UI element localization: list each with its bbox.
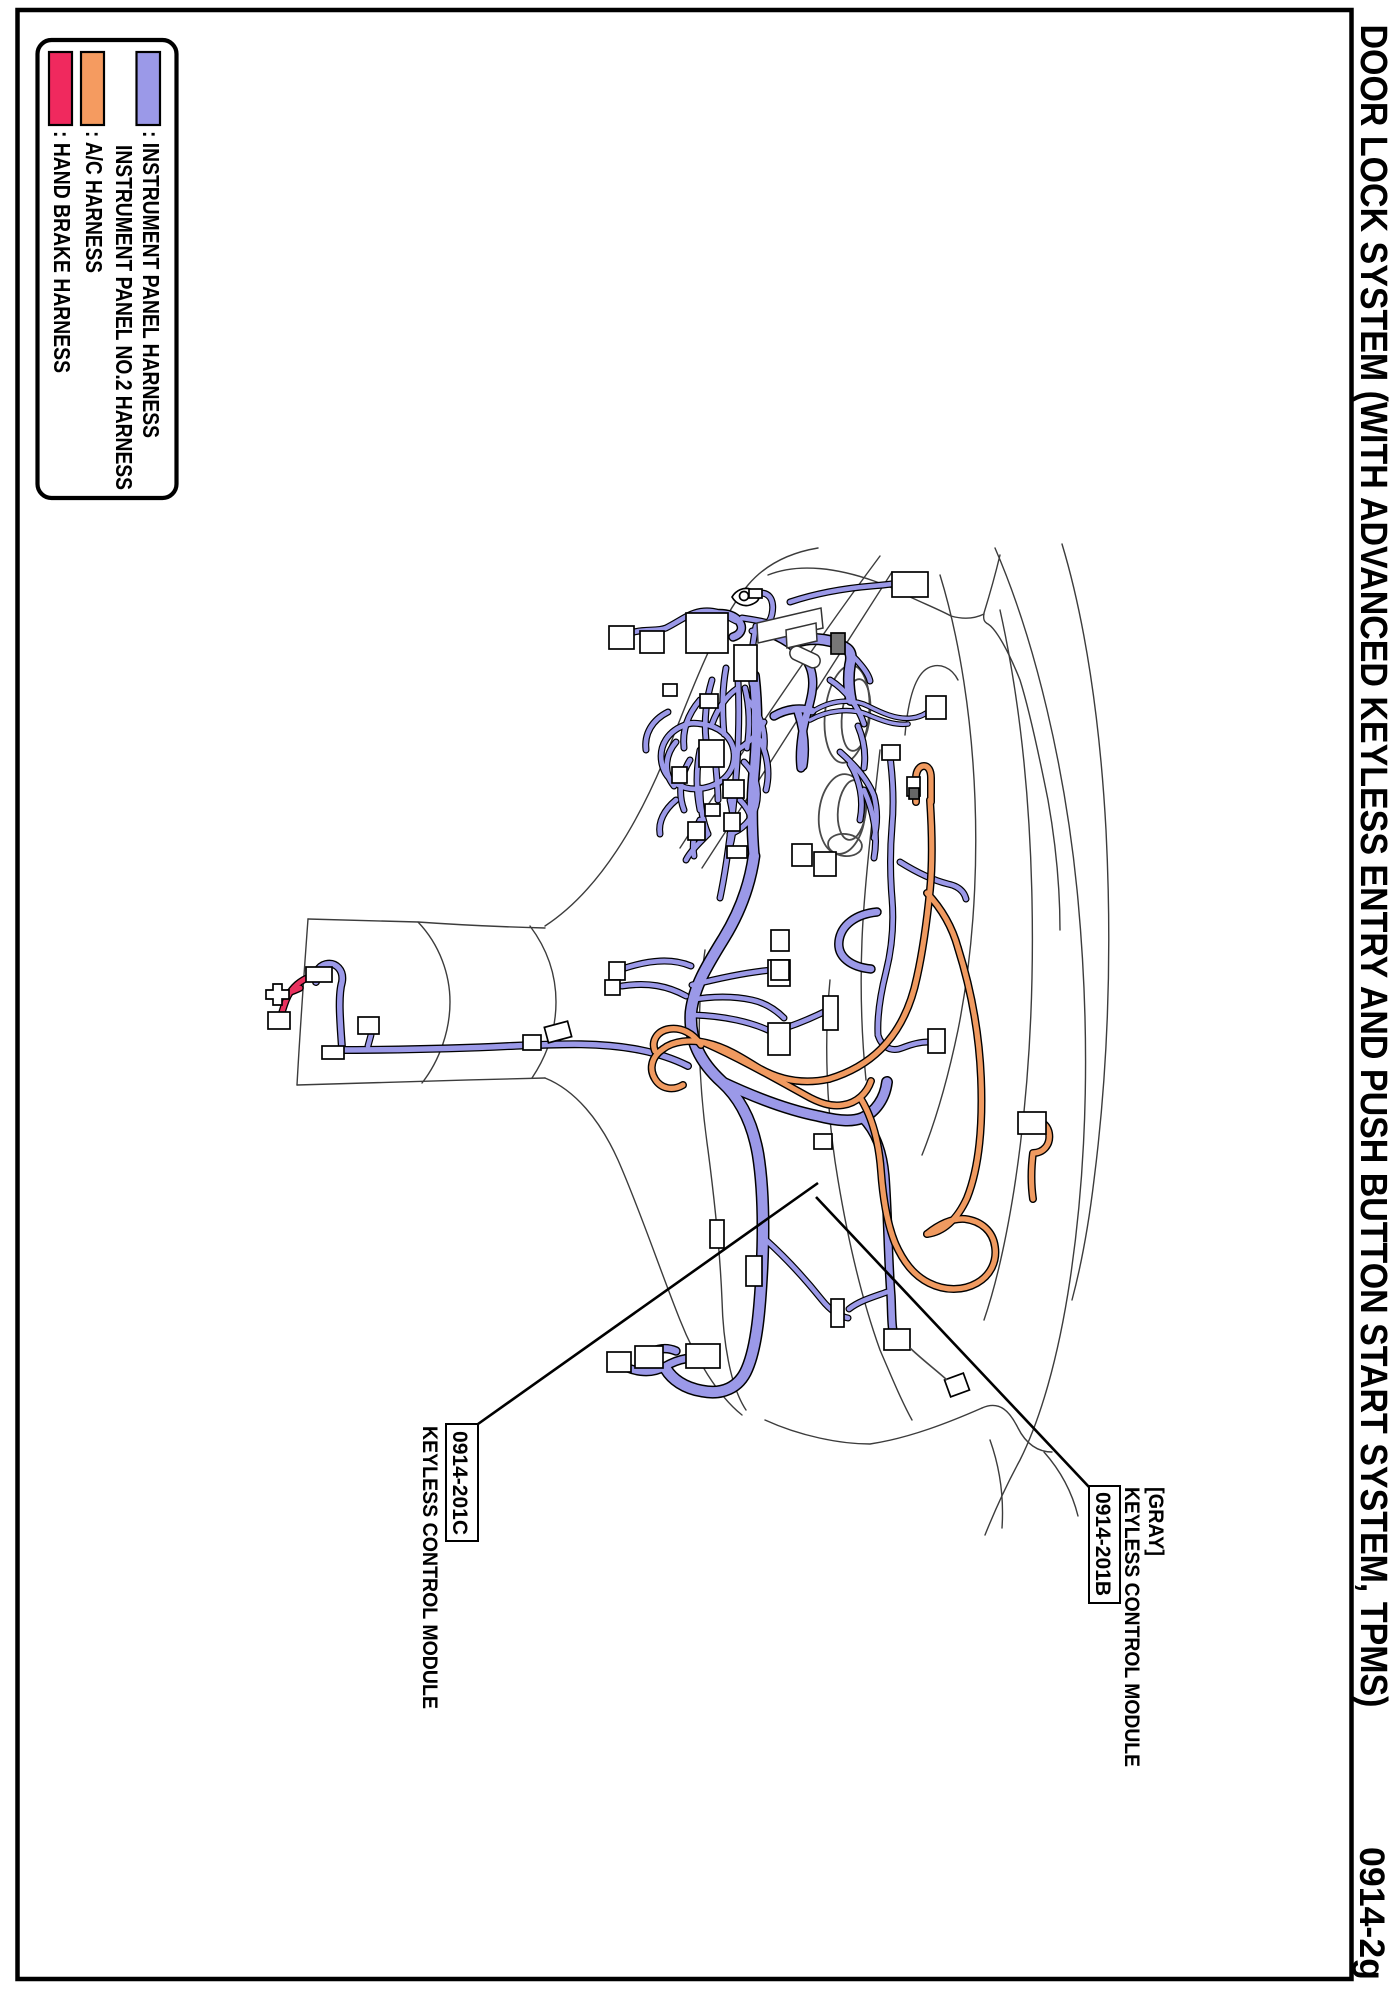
svg-text:DOOR LOCK SYSTEM (WITH ADVANCE: DOOR LOCK SYSTEM (WITH ADVANCED KEYLESS … bbox=[1352, 25, 1392, 1708]
svg-text:0914-201C: 0914-201C bbox=[448, 1431, 471, 1535]
svg-text:KEYLESS CONTROL MODULE: KEYLESS CONTROL MODULE bbox=[418, 1426, 441, 1709]
svg-text:0914-2g: 0914-2g bbox=[1352, 1847, 1391, 1980]
svg-text:: A/C HARNESS: : A/C HARNESS bbox=[81, 131, 107, 273]
svg-text:KEYLESS CONTROL MODULE: KEYLESS CONTROL MODULE bbox=[1120, 1487, 1143, 1767]
svg-text:: HAND BRAKE HARNESS: : HAND BRAKE HARNESS bbox=[49, 131, 75, 373]
svg-text:INSTRUMENT PANEL NO.2 HARNESS: INSTRUMENT PANEL NO.2 HARNESS bbox=[111, 145, 137, 490]
svg-text:[GRAY]: [GRAY] bbox=[1144, 1487, 1167, 1556]
svg-text:0914-201B: 0914-201B bbox=[1091, 1492, 1114, 1596]
svg-text:: INSTRUMENT PANEL HARNESS: : INSTRUMENT PANEL HARNESS bbox=[138, 131, 164, 438]
